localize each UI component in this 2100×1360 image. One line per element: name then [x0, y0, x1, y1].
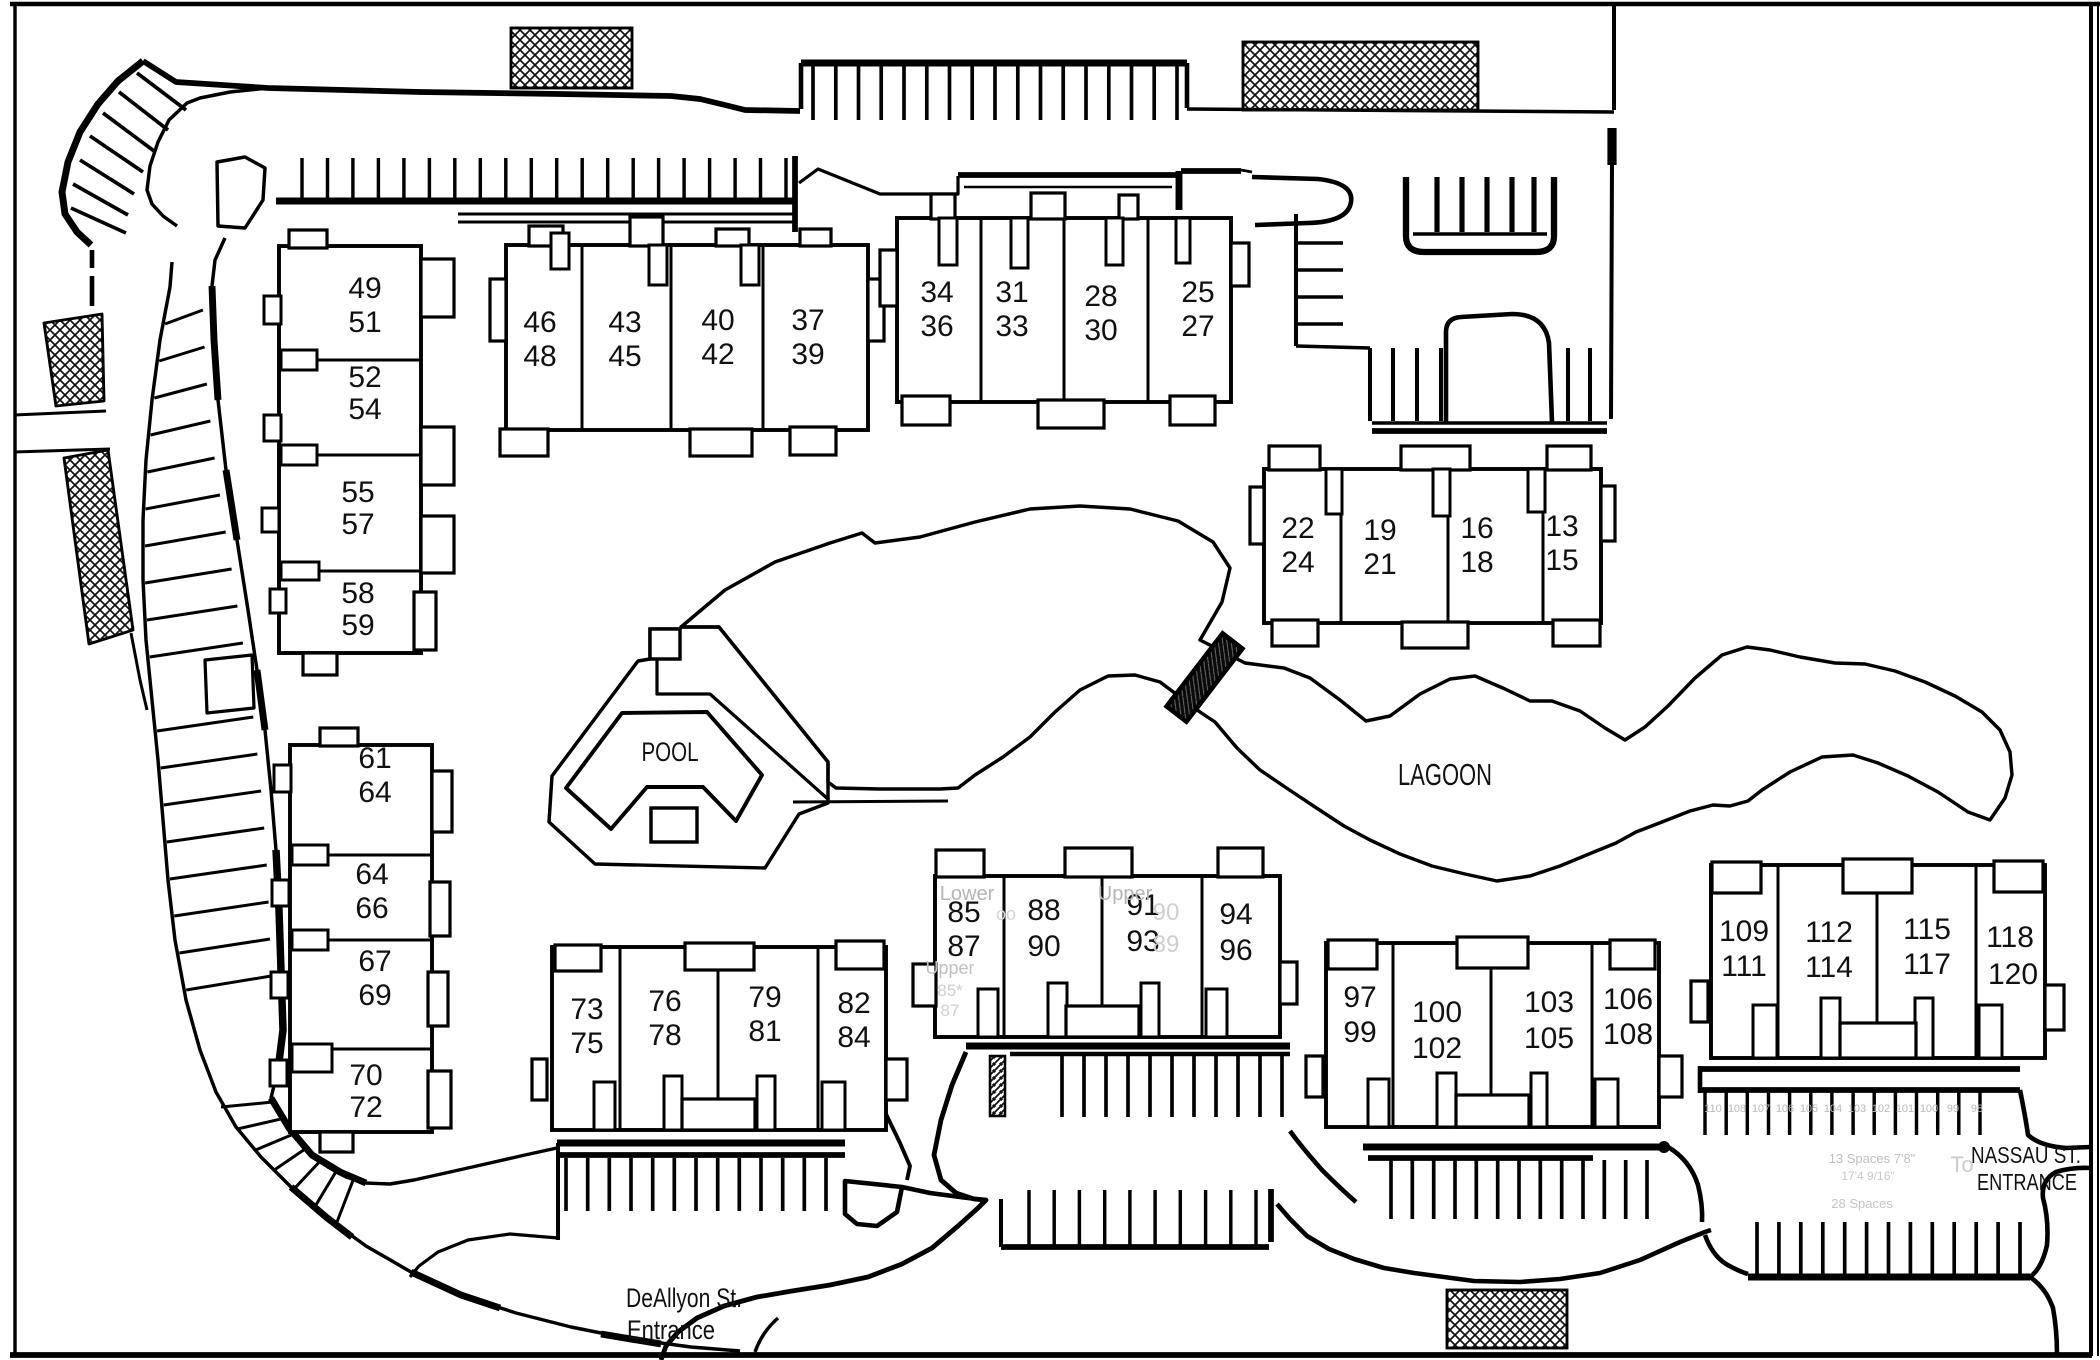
- svg-text:22: 22: [1281, 512, 1314, 545]
- svg-text:90: 90: [1153, 899, 1180, 926]
- svg-text:104: 104: [1824, 1103, 1842, 1115]
- svg-text:78: 78: [648, 1019, 681, 1052]
- svg-text:112: 112: [1805, 916, 1853, 949]
- svg-text:118: 118: [1986, 921, 2034, 954]
- svg-text:84: 84: [837, 1021, 870, 1054]
- svg-text:28 Spaces: 28 Spaces: [1831, 1196, 1893, 1211]
- svg-text:82: 82: [837, 987, 870, 1020]
- svg-text:19: 19: [1363, 514, 1396, 547]
- svg-text:117: 117: [1903, 948, 1951, 981]
- svg-text:73: 73: [570, 993, 603, 1026]
- svg-text:88: 88: [1027, 894, 1060, 927]
- svg-text:51: 51: [348, 306, 381, 339]
- svg-text:13: 13: [1545, 510, 1578, 543]
- svg-text:103: 103: [1848, 1103, 1866, 1115]
- svg-text:17'4 9/16": 17'4 9/16": [1841, 1169, 1894, 1183]
- svg-text:94: 94: [1219, 898, 1252, 931]
- svg-text:97: 97: [1343, 981, 1376, 1014]
- svg-text:36: 36: [920, 310, 953, 343]
- svg-text:Entrance: Entrance: [627, 1315, 715, 1345]
- svg-text:103: 103: [1524, 986, 1574, 1019]
- svg-text:37: 37: [791, 304, 824, 337]
- svg-text:89: 89: [1153, 931, 1180, 958]
- svg-text:120: 120: [1988, 958, 2038, 991]
- svg-text:Lower: Lower: [940, 883, 995, 905]
- svg-text:75: 75: [570, 1027, 603, 1060]
- svg-text:105: 105: [1800, 1103, 1818, 1115]
- svg-text:108: 108: [1728, 1103, 1746, 1115]
- svg-text:101: 101: [1896, 1103, 1914, 1115]
- svg-text:15: 15: [1545, 544, 1578, 577]
- svg-text:31: 31: [995, 276, 1028, 309]
- svg-text:16: 16: [1460, 512, 1493, 545]
- svg-text:30: 30: [1084, 314, 1117, 347]
- svg-text:64: 64: [355, 858, 388, 891]
- svg-text:59: 59: [341, 609, 374, 642]
- svg-text:107: 107: [1752, 1103, 1770, 1115]
- svg-text:87: 87: [941, 1001, 960, 1020]
- svg-text:POOL: POOL: [642, 737, 699, 767]
- svg-text:25: 25: [1181, 276, 1214, 309]
- svg-text:69: 69: [358, 979, 391, 1012]
- svg-text:70: 70: [349, 1059, 382, 1092]
- svg-text:114: 114: [1805, 951, 1853, 984]
- svg-text:90: 90: [1027, 930, 1060, 963]
- svg-text:64: 64: [358, 776, 391, 809]
- svg-text:21: 21: [1363, 548, 1396, 581]
- svg-text:55: 55: [341, 476, 374, 509]
- svg-text:98: 98: [1971, 1103, 1983, 1115]
- svg-text:99: 99: [1947, 1103, 1959, 1115]
- svg-text:108: 108: [1603, 1018, 1653, 1051]
- svg-text:96: 96: [1219, 934, 1252, 967]
- svg-text:57: 57: [341, 508, 374, 541]
- svg-text:13 Spaces 7'8": 13 Spaces 7'8": [1829, 1151, 1916, 1166]
- svg-text:18: 18: [1460, 546, 1493, 579]
- svg-text:109: 109: [1719, 915, 1769, 948]
- svg-text:102: 102: [1412, 1032, 1462, 1065]
- svg-text:105: 105: [1524, 1022, 1574, 1055]
- svg-text:34: 34: [920, 276, 953, 309]
- svg-text:49: 49: [348, 272, 381, 305]
- svg-text:43: 43: [608, 306, 641, 339]
- svg-text:66: 66: [355, 892, 388, 925]
- svg-text:42: 42: [701, 338, 734, 371]
- svg-text:106: 106: [1776, 1103, 1794, 1115]
- svg-text:106: 106: [1603, 983, 1653, 1016]
- svg-text:110: 110: [1704, 1103, 1722, 1115]
- svg-text:115: 115: [1903, 913, 1951, 946]
- svg-text:58: 58: [341, 577, 374, 610]
- svg-text:46: 46: [523, 306, 556, 339]
- svg-text:61: 61: [358, 742, 391, 775]
- svg-text:28: 28: [1084, 280, 1117, 313]
- svg-text:54: 54: [348, 393, 381, 426]
- svg-text:27: 27: [1181, 310, 1214, 343]
- svg-text:99: 99: [1343, 1016, 1376, 1049]
- svg-text:Upper: Upper: [1098, 883, 1153, 905]
- svg-text:72: 72: [349, 1091, 382, 1124]
- svg-text:52: 52: [348, 361, 381, 394]
- svg-text:NASSAU ST.: NASSAU ST.: [1971, 1142, 2081, 1168]
- svg-text:ENTRANCE: ENTRANCE: [1977, 1169, 2077, 1195]
- svg-text:45: 45: [608, 340, 641, 373]
- svg-text:LAGOON: LAGOON: [1398, 757, 1492, 792]
- svg-text:48: 48: [523, 340, 556, 373]
- svg-text:79: 79: [748, 981, 781, 1014]
- svg-text:102: 102: [1872, 1103, 1890, 1115]
- svg-text:DeAllyon St.: DeAllyon St.: [626, 1283, 742, 1313]
- svg-text:oo: oo: [996, 904, 1016, 924]
- svg-text:40: 40: [701, 304, 734, 337]
- svg-text:39: 39: [791, 338, 824, 371]
- svg-text:76: 76: [648, 985, 681, 1018]
- svg-text:67: 67: [358, 945, 391, 978]
- svg-text:Upper: Upper: [925, 958, 974, 978]
- svg-text:81: 81: [748, 1015, 781, 1048]
- svg-text:100: 100: [1920, 1103, 1938, 1115]
- svg-text:100: 100: [1412, 996, 1462, 1029]
- svg-text:85*: 85*: [937, 981, 963, 1000]
- svg-text:111: 111: [1721, 950, 1767, 983]
- svg-text:24: 24: [1281, 546, 1314, 579]
- svg-text:33: 33: [995, 310, 1028, 343]
